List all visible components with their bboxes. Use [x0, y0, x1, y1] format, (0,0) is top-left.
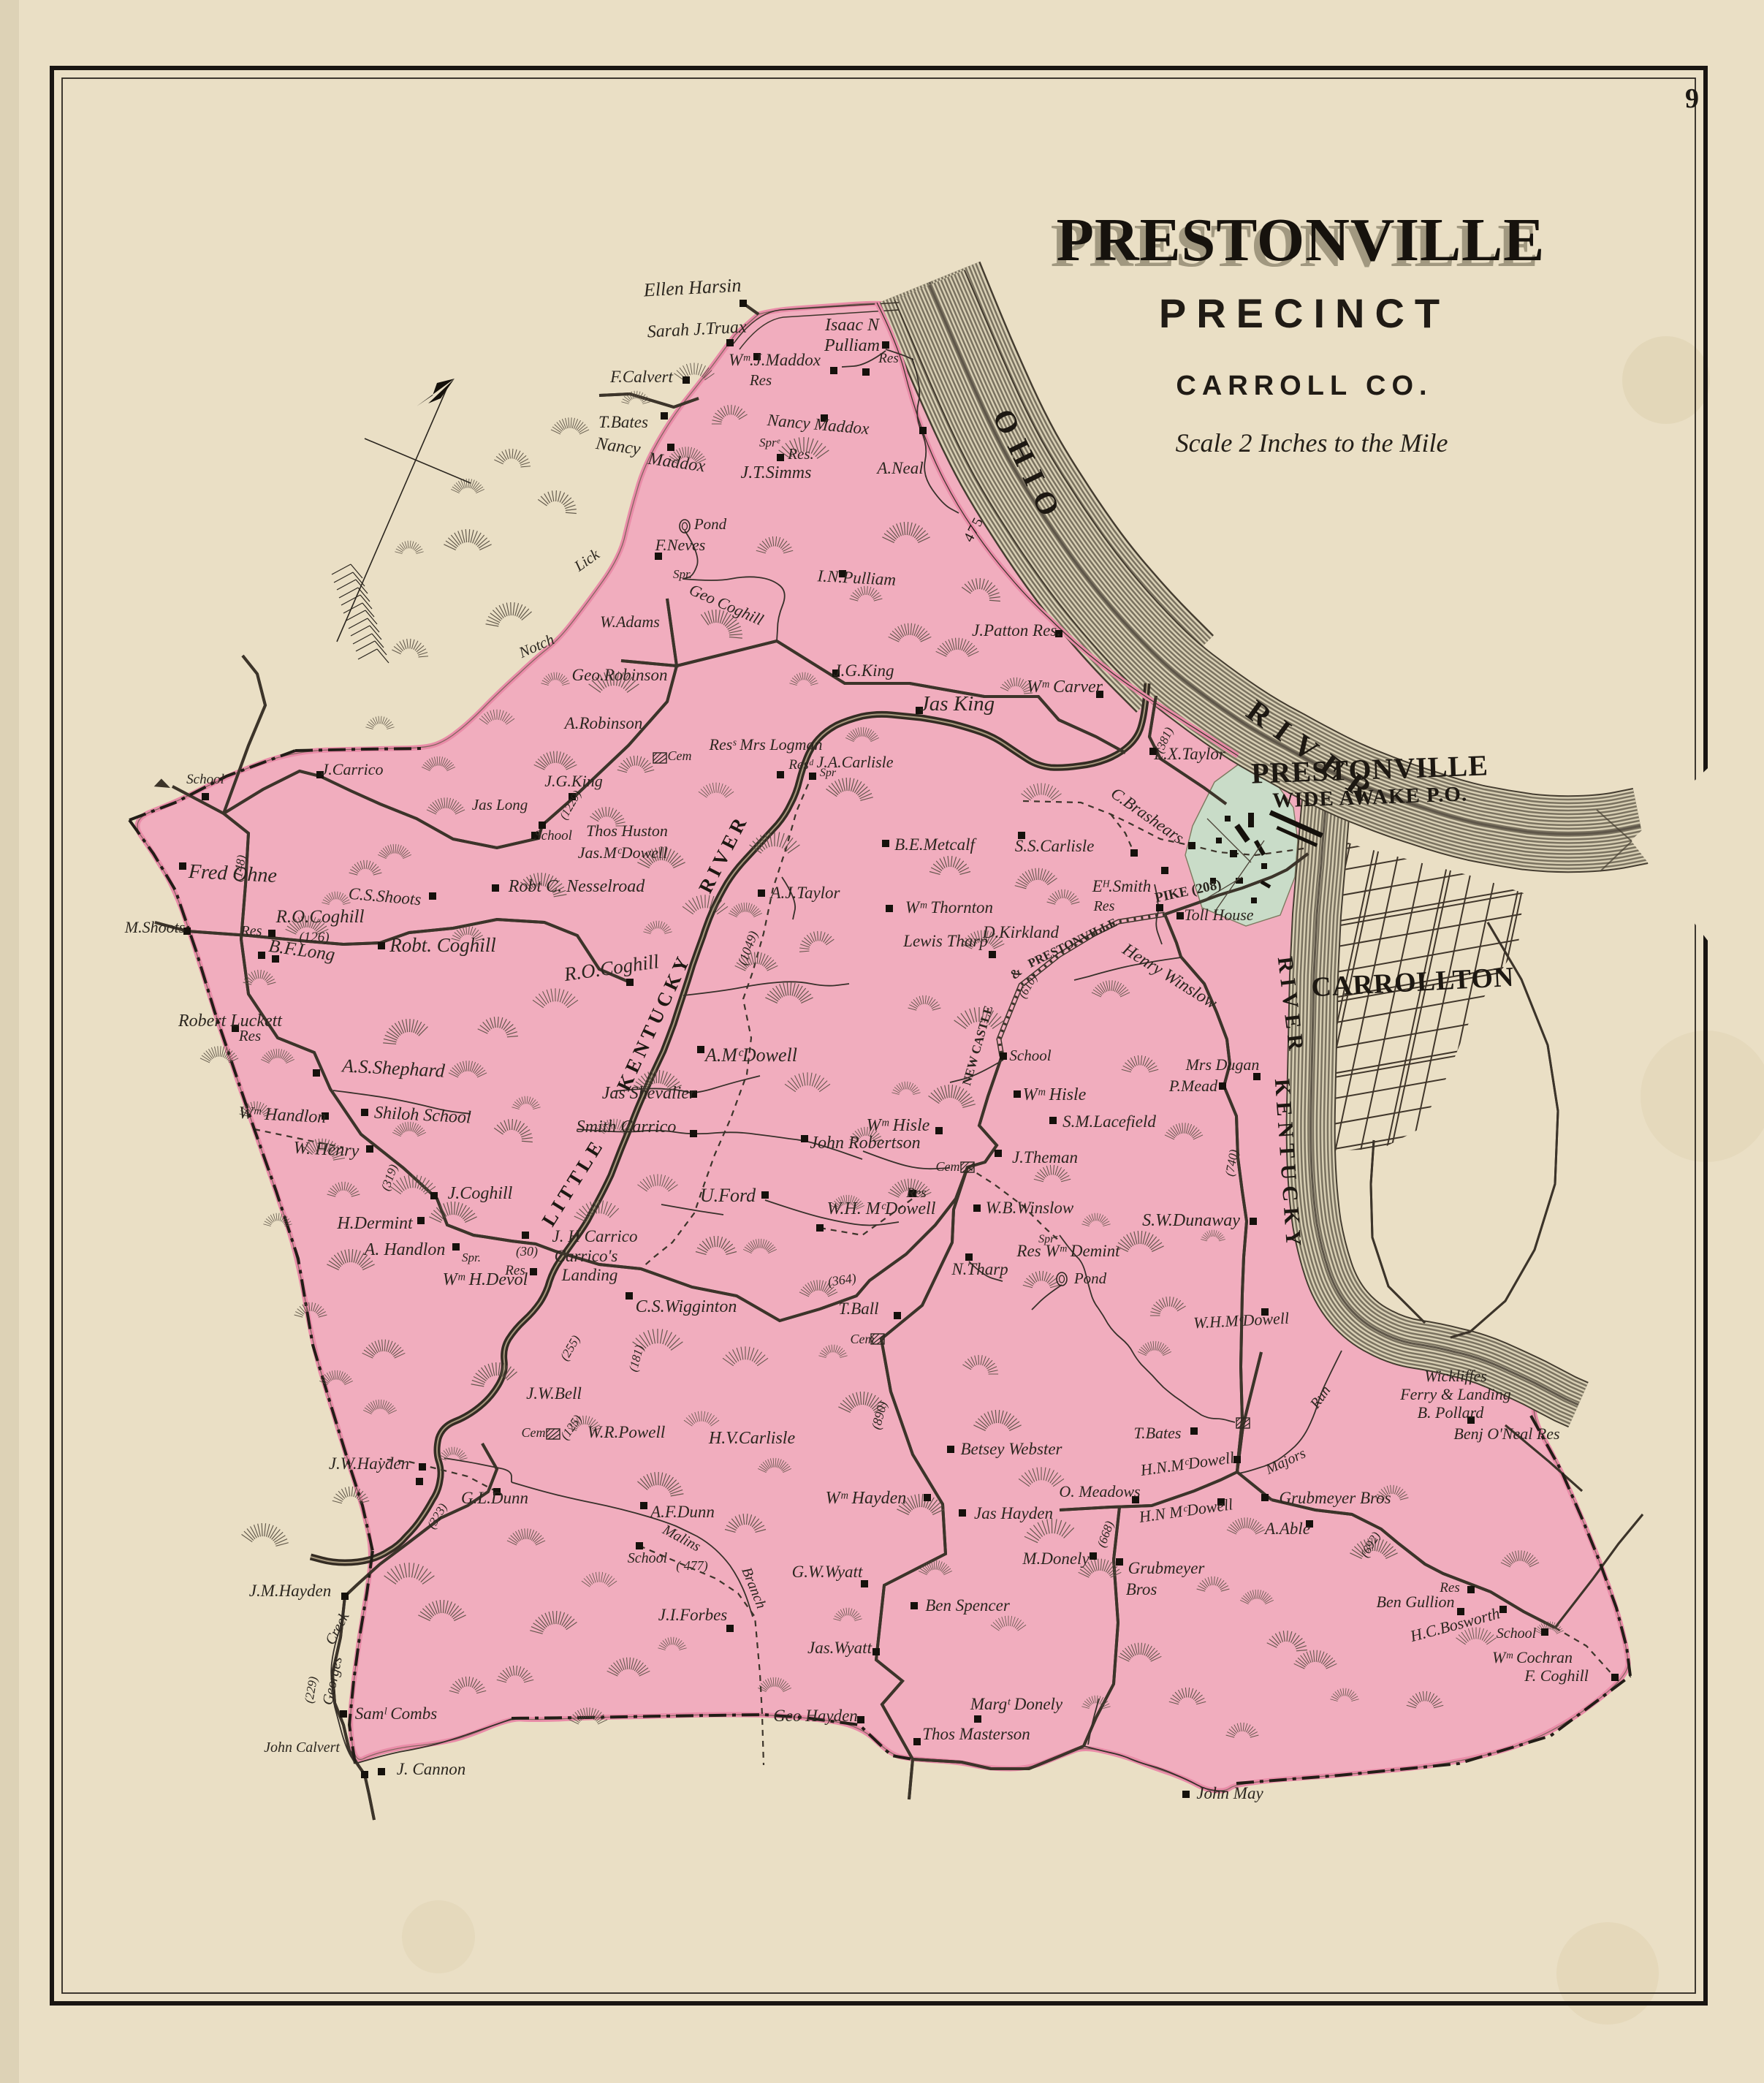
svg-text:A.Able: A.Able — [1263, 1519, 1310, 1538]
svg-text:Cem: Cem — [668, 748, 692, 763]
svg-text:W.Adams: W.Adams — [600, 612, 660, 631]
svg-text:Res Wᵐ Demint: Res Wᵐ Demint — [1016, 1242, 1120, 1260]
svg-text:P.Mead: P.Mead — [1168, 1077, 1218, 1095]
svg-text:Pond: Pond — [1073, 1270, 1107, 1287]
svg-text:A.F.Dunn: A.F.Dunn — [649, 1503, 715, 1521]
svg-text:Robt C. Nesselroad: Robt C. Nesselroad — [508, 877, 645, 896]
svg-text:Scale 2 Inches to the Mile: Scale 2 Inches to the Mile — [1176, 428, 1448, 458]
svg-text:Ferry & Landing: Ferry & Landing — [1399, 1385, 1511, 1403]
svg-text:T.Bates: T.Bates — [1134, 1424, 1182, 1442]
svg-text:(30): (30) — [516, 1244, 538, 1259]
svg-text:Res.: Res. — [787, 445, 814, 463]
svg-text:School: School — [1009, 1047, 1051, 1064]
svg-text:Jas Shevalier: Jas Shevalier — [602, 1084, 696, 1103]
svg-text:Toll House: Toll House — [1184, 906, 1253, 924]
svg-text:Wᵐ.J.Maddox: Wᵐ.J.Maddox — [729, 351, 821, 369]
svg-text:Res: Res — [878, 351, 898, 366]
svg-text:Resᵈ: Resᵈ — [788, 757, 813, 773]
svg-text:Smith Carrico: Smith Carrico — [577, 1118, 677, 1137]
svg-text:Grubmeyer Bros: Grubmeyer Bros — [1279, 1489, 1391, 1507]
svg-text:Thos Masterson: Thos Masterson — [922, 1725, 1030, 1743]
svg-text:Wᵐ Hayden: Wᵐ Hayden — [826, 1489, 907, 1508]
svg-text:Cem: Cem — [936, 1159, 960, 1174]
svg-text:Wickliffes: Wickliffes — [1424, 1367, 1487, 1385]
svg-text:Robt. Coghill: Robt. Coghill — [389, 934, 496, 956]
svg-text:D.Kirkland: D.Kirkland — [982, 923, 1060, 941]
svg-text:J.G.King: J.G.King — [544, 772, 602, 790]
svg-text:Pulliam: Pulliam — [824, 336, 880, 355]
svg-text:Ben Spencer: Ben Spencer — [925, 1596, 1011, 1615]
svg-text:Spr.: Spr. — [462, 1251, 481, 1264]
svg-text:H.V.Carlisle: H.V.Carlisle — [708, 1429, 796, 1448]
svg-text:T.Bates: T.Bates — [598, 413, 648, 431]
svg-text:W.R.Powell: W.R.Powell — [588, 1423, 665, 1441]
svg-text:Eᴴ.Smith: Eᴴ.Smith — [1092, 877, 1151, 895]
svg-text:S.M.Lacefield: S.M.Lacefield — [1062, 1112, 1156, 1131]
svg-text:W.H. MᶜDowell: W.H. MᶜDowell — [827, 1199, 936, 1218]
svg-text:S.S.Carlisle: S.S.Carlisle — [1015, 837, 1095, 855]
svg-text:Bros: Bros — [1126, 1580, 1157, 1598]
svg-text:Resˢ Mrs Logman: Resˢ Mrs Logman — [709, 735, 823, 754]
svg-text:Landing: Landing — [561, 1266, 618, 1284]
svg-text:John May: John May — [1196, 1784, 1263, 1802]
svg-text:Sprʳ: Sprʳ — [1038, 1233, 1058, 1245]
svg-text:S.W.Dunaway: S.W.Dunaway — [1142, 1211, 1240, 1230]
svg-text:J. Cannon: J. Cannon — [397, 1760, 466, 1778]
svg-text:Carrico's: Carrico's — [555, 1247, 618, 1265]
svg-text:J. H Carrico: J. H Carrico — [552, 1227, 638, 1245]
svg-text:C.S.Wigginton: C.S.Wigginton — [636, 1297, 737, 1316]
svg-text:F.Calvert: F.Calvert — [609, 368, 673, 386]
svg-text:F.Neves: F.Neves — [655, 536, 706, 554]
svg-text:Res: Res — [905, 1185, 926, 1201]
svg-text:U.Ford: U.Ford — [700, 1185, 756, 1206]
svg-text:Wᵐ Cochran: Wᵐ Cochran — [1492, 1648, 1573, 1666]
svg-text:J.W.Bell: J.W.Bell — [526, 1384, 582, 1403]
svg-text:J.Patton Res.: J.Patton Res. — [972, 621, 1061, 640]
svg-text:Mrs Dugan: Mrs Dugan — [1185, 1055, 1260, 1074]
svg-text:Sprᵉ: Sprᵉ — [759, 436, 780, 449]
svg-text:School: School — [628, 1550, 668, 1566]
svg-text:M.Shoots: M.Shoots — [124, 918, 186, 936]
svg-text:A.MᶜDowell: A.MᶜDowell — [704, 1044, 797, 1066]
svg-text:B.E.Metcalf: B.E.Metcalf — [894, 835, 977, 854]
svg-text:J.Coghill: J.Coghill — [448, 1184, 513, 1203]
svg-text:John Robertson: John Robertson — [810, 1134, 920, 1153]
svg-text:Wᵐ Carver: Wᵐ Carver — [1027, 678, 1103, 697]
svg-text:F. Coghill: F. Coghill — [1524, 1666, 1589, 1685]
svg-text:Wᵐ Hisle: Wᵐ Hisle — [867, 1116, 930, 1135]
svg-text:Cem: Cem — [522, 1425, 546, 1440]
svg-text:Grubmeyer: Grubmeyer — [1128, 1559, 1206, 1577]
svg-text:J.Carrico: J.Carrico — [322, 760, 384, 778]
svg-text:N.Tharp: N.Tharp — [951, 1260, 1008, 1278]
svg-text:J.T.Simms: J.T.Simms — [741, 463, 812, 482]
svg-text:Res: Res — [238, 1027, 261, 1044]
svg-text:Res: Res — [1093, 898, 1115, 914]
svg-text:Samˡ Combs: Samˡ Combs — [355, 1704, 437, 1723]
svg-text:J.I.Forbes: J.I.Forbes — [658, 1606, 728, 1624]
svg-text:PRESTONVILLE: PRESTONVILLE — [1057, 206, 1546, 274]
svg-text:School: School — [186, 772, 224, 787]
svg-text:Lewis Tharp: Lewis Tharp — [902, 932, 988, 950]
svg-text:J.G.King: J.G.King — [833, 661, 894, 680]
svg-text:A.J.Taylor: A.J.Taylor — [769, 884, 841, 902]
svg-text:W. Henry: W. Henry — [293, 1139, 360, 1161]
svg-text:Robert Luckett: Robert Luckett — [178, 1012, 283, 1031]
svg-text:J.M.Hayden: J.M.Hayden — [249, 1582, 331, 1600]
svg-text:Betsey Webster: Betsey Webster — [960, 1440, 1062, 1458]
svg-text:Spr.: Spr. — [673, 567, 692, 581]
svg-text:Benj O'Neal Res: Benj O'Neal Res — [1453, 1424, 1559, 1443]
svg-text:Ben Gullion: Ben Gullion — [1377, 1593, 1455, 1611]
svg-text:Pond: Pond — [693, 515, 727, 533]
svg-text:9: 9 — [1685, 83, 1699, 114]
svg-text:School: School — [1497, 1625, 1537, 1642]
svg-text:Jas Hayden: Jas Hayden — [974, 1504, 1053, 1522]
svg-text:John Calvert: John Calvert — [264, 1739, 340, 1756]
svg-text:A.Neal: A.Neal — [875, 459, 923, 477]
svg-text:Geo.Robinson: Geo.Robinson — [572, 666, 668, 684]
svg-text:W.B.Winslow: W.B.Winslow — [986, 1199, 1074, 1217]
svg-text:Wᵐ Thornton: Wᵐ Thornton — [905, 898, 993, 917]
svg-text:School: School — [534, 828, 572, 843]
svg-text:O. Meadows: O. Meadows — [1059, 1482, 1140, 1500]
svg-text:Margᵗ Donely: Margᵗ Donely — [970, 1695, 1063, 1713]
svg-text:Res: Res — [240, 923, 262, 939]
svg-text:Jas.MᶜDowell: Jas.MᶜDowell — [578, 843, 667, 862]
svg-text:A.Robinson: A.Robinson — [563, 714, 643, 732]
svg-text:G.L.Dunn: G.L.Dunn — [461, 1489, 528, 1507]
svg-text:H.Dermint: H.Dermint — [336, 1214, 414, 1233]
svg-text:Spr: Spr — [820, 767, 837, 779]
svg-text:Wᵐ Hisle: Wᵐ Hisle — [1023, 1085, 1087, 1104]
svg-text:CARROLL CO.: CARROLL CO. — [1176, 371, 1432, 401]
svg-text:A. Handlon: A. Handlon — [363, 1240, 446, 1259]
svg-text:J.Theman: J.Theman — [1012, 1148, 1078, 1166]
svg-text:G.W.Wyatt: G.W.Wyatt — [792, 1563, 863, 1581]
svg-text:PRECINCT: PRECINCT — [1159, 290, 1450, 336]
svg-text:( 477): ( 477) — [676, 1558, 708, 1574]
svg-text:Geo Hayden: Geo Hayden — [773, 1707, 858, 1725]
svg-text:T.Ball: T.Ball — [838, 1299, 878, 1318]
svg-text:Res: Res — [749, 371, 772, 389]
svg-text:Jas Long: Jas Long — [472, 796, 528, 813]
svg-text:Isaac N: Isaac N — [824, 316, 881, 335]
svg-text:M.Donely: M.Donely — [1022, 1549, 1090, 1568]
svg-text:Res: Res — [504, 1263, 525, 1278]
svg-text:Thos Huston: Thos Huston — [586, 822, 668, 840]
svg-text:B. Pollard: B. Pollard — [1418, 1403, 1485, 1422]
svg-text:R.O.Coghill: R.O.Coghill — [275, 907, 365, 927]
svg-text:J.W.Hayden: J.W.Hayden — [329, 1454, 409, 1473]
svg-text:Jas.Wyatt: Jas.Wyatt — [807, 1639, 873, 1657]
svg-text:Jas King: Jas King — [920, 692, 995, 716]
svg-text:Cem: Cem — [851, 1332, 875, 1346]
